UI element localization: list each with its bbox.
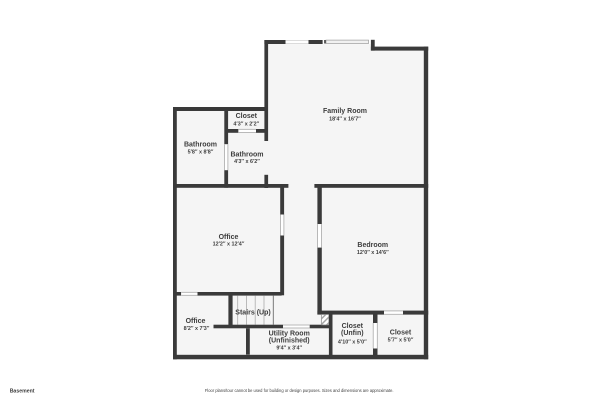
svg-text:Bathroom: Bathroom [184, 141, 217, 148]
svg-text:8′2″ x 7′3″: 8′2″ x 7′3″ [184, 326, 210, 332]
svg-text:12′2″ x 12′4″: 12′2″ x 12′4″ [213, 242, 245, 248]
svg-text:(Unfin): (Unfin) [341, 330, 364, 337]
svg-text:Closet: Closet [390, 330, 412, 337]
svg-text:(Unfinished): (Unfinished) [269, 337, 310, 344]
svg-text:9′4″ x 3′4″: 9′4″ x 3′4″ [276, 346, 302, 352]
svg-text:4′3″ x 6′2″: 4′3″ x 6′2″ [234, 159, 260, 165]
svg-text:Stairs (Up): Stairs (Up) [235, 309, 270, 316]
svg-text:Basement: Basement [10, 388, 35, 394]
svg-text:5′7″ x 5′0″: 5′7″ x 5′0″ [388, 338, 414, 344]
svg-text:Bathroom: Bathroom [230, 151, 263, 158]
svg-text:Family Room: Family Room [323, 108, 367, 115]
svg-text:5′8″ x 8′8″: 5′8″ x 8′8″ [188, 149, 214, 155]
svg-text:Office: Office [186, 318, 206, 325]
svg-text:Closet: Closet [236, 113, 258, 120]
svg-text:Closet: Closet [342, 323, 364, 330]
svg-text:4′3″ x 2′2″: 4′3″ x 2′2″ [233, 121, 259, 127]
svg-text:Office: Office [219, 234, 239, 241]
svg-text:Floor plans/tour cannot be use: Floor plans/tour cannot be used for buil… [205, 388, 394, 393]
svg-text:Bedroom: Bedroom [357, 242, 388, 249]
svg-text:12′0″ x 14′6″: 12′0″ x 14′6″ [357, 250, 389, 256]
svg-text:4′10″ x 5′0″: 4′10″ x 5′0″ [338, 339, 367, 345]
svg-text:18′4″ x 16′7″: 18′4″ x 16′7″ [329, 116, 361, 122]
